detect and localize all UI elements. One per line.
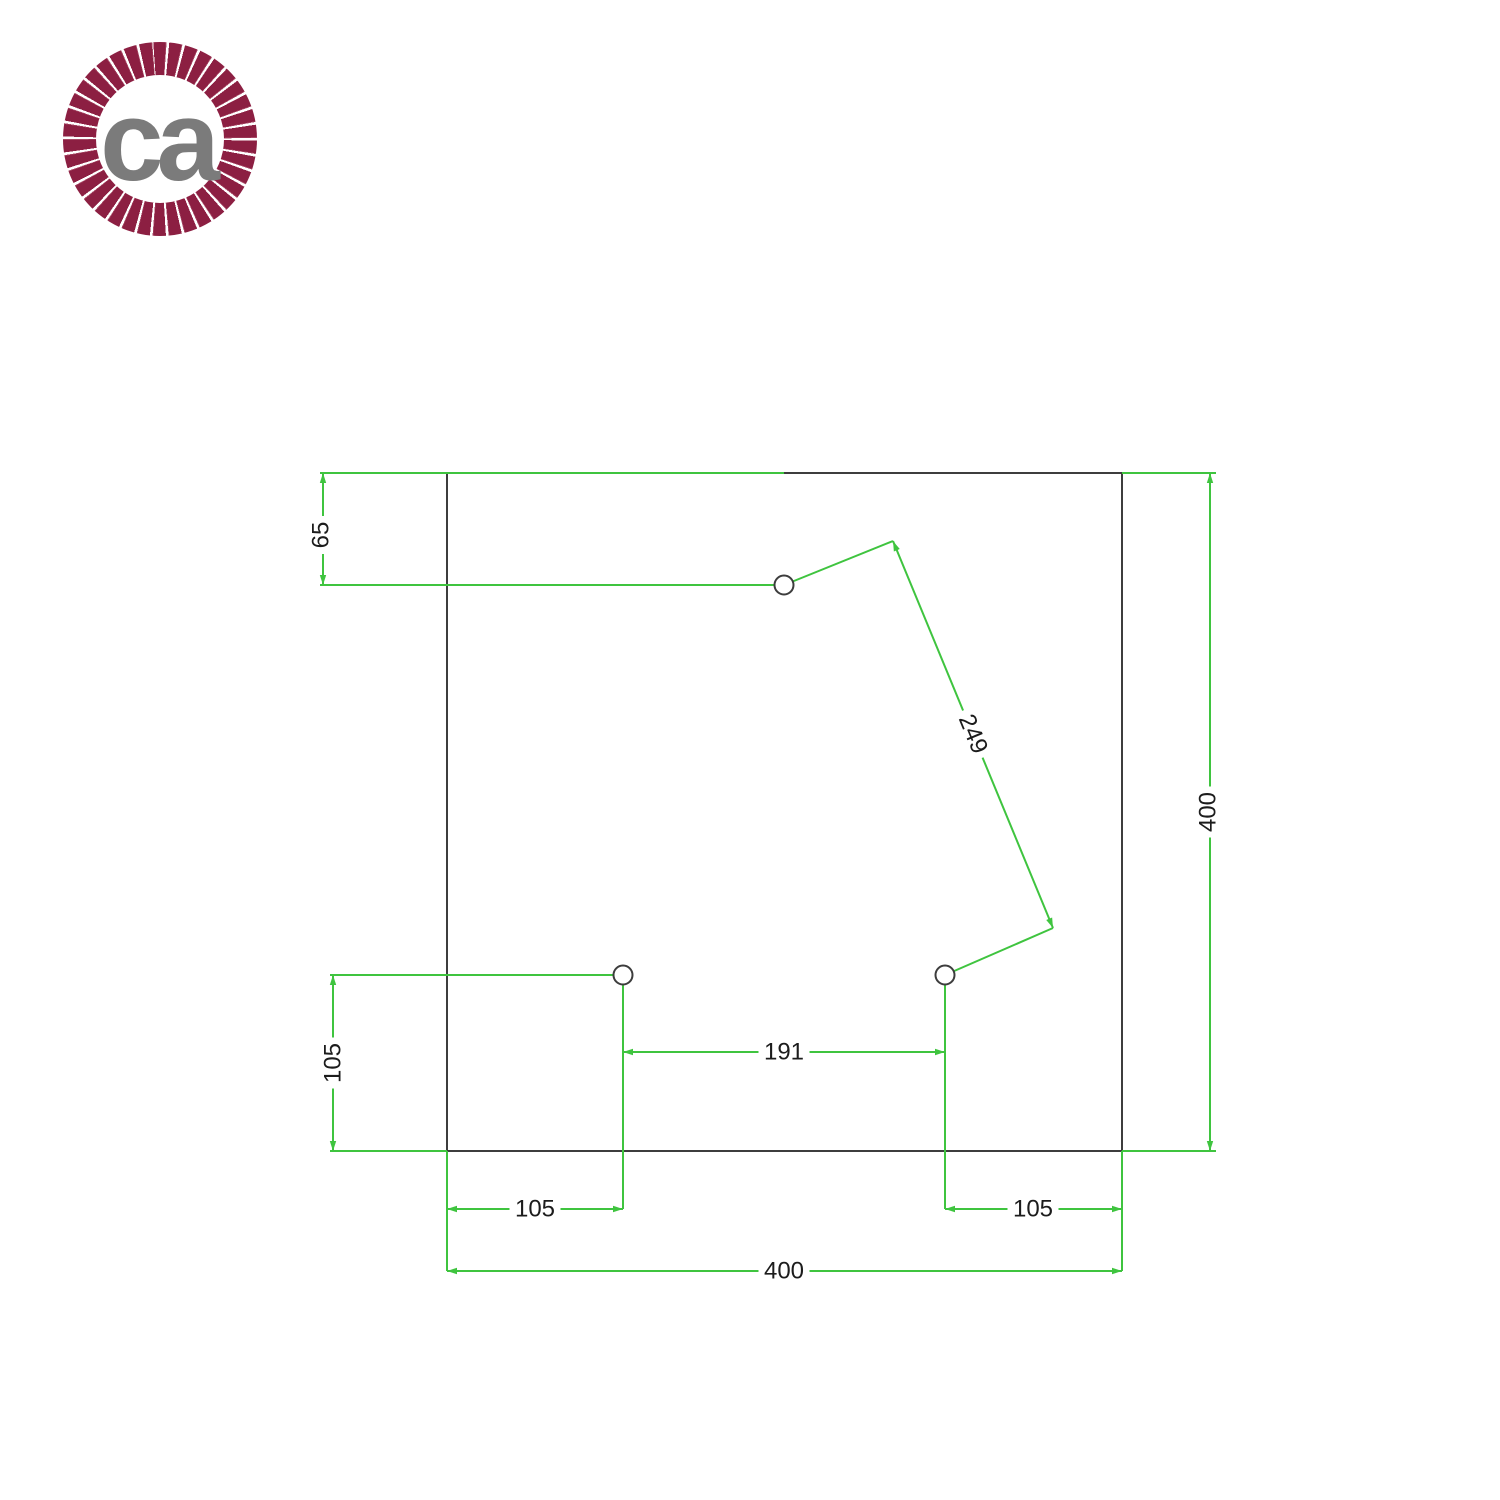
- dim-191-between-holes-label-group: 191: [759, 1039, 810, 1066]
- dim-191-between-holes-arrow-start: [623, 1049, 633, 1055]
- dim-400-right-arrow-start: [1207, 473, 1213, 483]
- hole-top-center: [775, 576, 794, 595]
- dim-65-left-top-arrow-start: [320, 473, 326, 483]
- dim-105-bottom-right-arrow-end: [1112, 1206, 1122, 1212]
- dim-249-diagonal-arrow-end: [1046, 918, 1053, 928]
- dim-400-bottom-label-group: 400: [759, 1258, 810, 1285]
- dim-105-bottom-left-arrow-end: [613, 1206, 623, 1212]
- dim-105-left-label: 105: [320, 1043, 347, 1083]
- dim-400-right-label: 400: [1195, 792, 1222, 832]
- dim-65-left-top-label-group: 65: [308, 516, 335, 554]
- dim-105-bottom-right-label: 105: [1013, 1196, 1053, 1223]
- dim-191-between-holes-label: 191: [764, 1039, 804, 1066]
- dim-191-between-holes-arrow-end: [935, 1049, 945, 1055]
- dim-105-bottom-right-label-group: 105: [1008, 1196, 1059, 1223]
- dim-105-left-label-group: 105: [320, 1038, 347, 1089]
- dim-249-diagonal-extension-line-0: [784, 541, 893, 585]
- dim-105-bottom-right-arrow-start: [945, 1206, 955, 1212]
- hole-bottom-left: [614, 966, 633, 985]
- dim-400-right-arrow-end: [1207, 1141, 1213, 1151]
- dim-400-right-label-group: 400: [1195, 787, 1222, 838]
- dim-105-left-arrow-start: [330, 975, 336, 985]
- dim-400-bottom-arrow-end: [1112, 1268, 1122, 1274]
- page: ca 65105191105105400400249: [0, 0, 1500, 1500]
- dim-105-bottom-left-label: 105: [515, 1196, 555, 1223]
- dim-400-bottom-label: 400: [764, 1258, 804, 1285]
- dim-249-diagonal-extension-line-1: [945, 928, 1053, 975]
- hole-bottom-right: [936, 966, 955, 985]
- dim-400-bottom-arrow-start: [447, 1268, 457, 1274]
- dim-105-bottom-left-arrow-start: [447, 1206, 457, 1212]
- technical-drawing: 65105191105105400400249: [0, 0, 1500, 1500]
- dim-105-bottom-left-label-group: 105: [510, 1196, 561, 1223]
- dim-249-diagonal-label-group: 249: [951, 705, 995, 762]
- dim-65-left-top-arrow-end: [320, 575, 326, 585]
- dim-249-diagonal-arrow-start: [893, 541, 900, 551]
- dim-105-left-arrow-end: [330, 1141, 336, 1151]
- dim-65-left-top-label: 65: [308, 522, 335, 549]
